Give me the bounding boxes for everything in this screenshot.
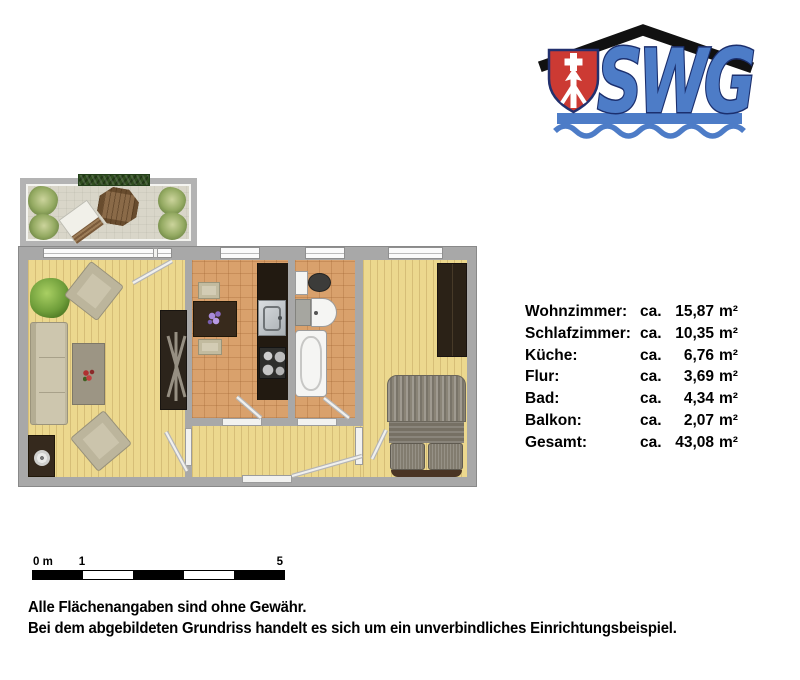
- room-name: Flur:: [525, 366, 640, 388]
- area-row: Schlafzimmer: ca. 10,35 m²: [525, 323, 765, 345]
- scale-label-five: 5: [277, 556, 283, 568]
- room-name: Wohnzimmer:: [525, 301, 640, 323]
- approx-label: ca.: [640, 345, 666, 367]
- area-unit: m²: [714, 410, 738, 432]
- logo-shield-icon: [549, 50, 598, 112]
- disclaimer: Alle Flächenangaben sind ohne Gewähr. Be…: [28, 597, 788, 639]
- area-unit: m²: [714, 345, 738, 367]
- area-row: Bad: ca. 4,34 m²: [525, 388, 765, 410]
- scale-segment: [83, 571, 133, 579]
- area-row-total: Gesamt: ca. 43,08 m²: [525, 432, 765, 454]
- area-value: 43,08: [666, 432, 714, 454]
- approx-label: ca.: [640, 388, 666, 410]
- area-row: Wohnzimmer: ca. 15,87 m²: [525, 301, 765, 323]
- area-table: Wohnzimmer: ca. 15,87 m² Schlafzimmer: c…: [525, 301, 765, 454]
- area-unit: m²: [714, 323, 738, 345]
- area-unit: m²: [714, 432, 738, 454]
- area-unit: m²: [714, 301, 738, 323]
- scale-bar-segments: [32, 570, 285, 580]
- approx-label: ca.: [640, 432, 666, 454]
- area-value: 6,76: [666, 345, 714, 367]
- area-unit: m²: [714, 388, 738, 410]
- logo-letters: SWG: [597, 32, 753, 134]
- room-name: Schlafzimmer:: [525, 323, 640, 345]
- easel-icon: [168, 332, 185, 401]
- scale-segment: [133, 571, 183, 579]
- scale-label-one: 1: [79, 556, 85, 568]
- area-unit: m²: [714, 366, 738, 388]
- disclaimer-line-1: Alle Flächenangaben sind ohne Gewähr.: [28, 597, 735, 618]
- room-name: Gesamt:: [525, 432, 640, 454]
- area-row: Küche: ca. 6,76 m²: [525, 345, 765, 367]
- area-value: 3,69: [666, 366, 714, 388]
- room-name: Bad:: [525, 388, 640, 410]
- approx-label: ca.: [640, 410, 666, 432]
- room-name: Küche:: [525, 345, 640, 367]
- door-swings: [15, 175, 480, 490]
- area-value: 10,35: [666, 323, 714, 345]
- scale-segment: [234, 571, 284, 579]
- approx-label: ca.: [640, 366, 666, 388]
- scale-bar: 0 m 1 5: [32, 556, 283, 580]
- scale-segment: [33, 571, 83, 579]
- scale-label-zero: 0 m: [33, 556, 53, 568]
- swg-logo: SWG: [538, 20, 770, 142]
- area-value: 15,87: [666, 301, 714, 323]
- approx-label: ca.: [640, 301, 666, 323]
- area-row: Flur: ca. 3,69 m²: [525, 366, 765, 388]
- area-row: Balkon: ca. 2,07 m²: [525, 410, 765, 432]
- scale-segment: [184, 571, 234, 579]
- floor-plan: [15, 175, 480, 490]
- area-value: 2,07: [666, 410, 714, 432]
- room-name: Balkon:: [525, 410, 640, 432]
- approx-label: ca.: [640, 323, 666, 345]
- area-value: 4,34: [666, 388, 714, 410]
- disclaimer-line-2: Bei dem abgebildeten Grundriss handelt e…: [28, 618, 735, 639]
